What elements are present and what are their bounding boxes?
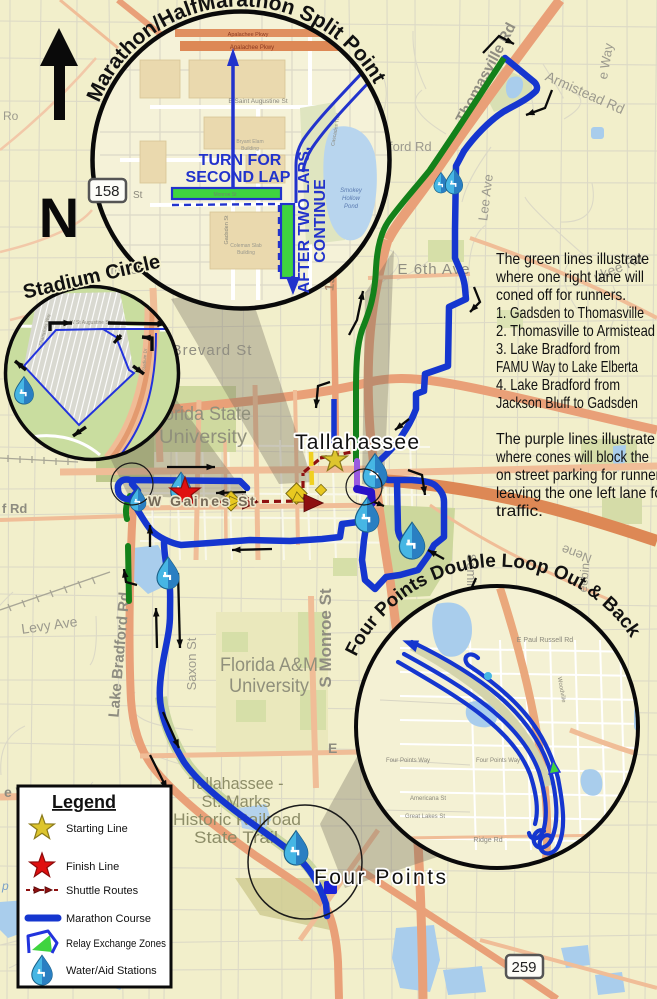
svg-text:W St Augustine St: W St Augustine St — [70, 320, 111, 326]
svg-text:ford Rd: ford Rd — [389, 139, 432, 154]
svg-text:Water/Aid Stations: Water/Aid Stations — [66, 965, 157, 977]
svg-text:Ro: Ro — [3, 109, 19, 123]
svg-text:Americana St: Americana St — [410, 796, 446, 802]
svg-text:St: St — [133, 190, 143, 201]
svg-text:E Paul Russell Rd: E Paul Russell Rd — [517, 637, 574, 644]
svg-text:Bryant Elam: Bryant Elam — [236, 139, 263, 145]
svg-text:where cones will block the: where cones will block the — [495, 449, 649, 466]
svg-text:Florida A&M: Florida A&M — [220, 655, 318, 676]
svg-text:p: p — [1, 879, 9, 893]
svg-text:Coleman Slab: Coleman Slab — [230, 243, 262, 249]
svg-text:Monroe St: Monroe St — [213, 192, 237, 198]
svg-text:The green lines illustrate: The green lines illustrate — [496, 251, 649, 268]
svg-text:B Saint Augustine St: B Saint Augustine St — [228, 98, 287, 105]
svg-text:1. Gadsden to Thomasville: 1. Gadsden to Thomasville — [496, 305, 644, 322]
svg-text:University: University — [159, 427, 248, 448]
svg-text:E: E — [328, 740, 337, 756]
svg-text:University: University — [229, 676, 309, 697]
svg-text:Four Points Way: Four Points Way — [476, 758, 520, 764]
svg-text:The purple lines illustrate: The purple lines illustrate — [496, 431, 655, 448]
svg-text:3. Lake Bradford from: 3. Lake Bradford from — [496, 341, 620, 358]
svg-text:SECOND LAP: SECOND LAP — [186, 169, 291, 186]
svg-text:traffic.: traffic. — [496, 503, 543, 520]
svg-text:259: 259 — [511, 959, 536, 976]
svg-text:leaving the one left lane for: leaving the one left lane for — [496, 485, 657, 502]
svg-text:Building: Building — [237, 250, 255, 256]
svg-text:Ridge Rd: Ridge Rd — [473, 837, 502, 844]
svg-text:Starting Line: Starting Line — [66, 823, 128, 835]
svg-text:Smokey: Smokey — [340, 188, 363, 194]
svg-text:Saxon St: Saxon St — [184, 637, 199, 690]
svg-text:Marathon Course: Marathon Course — [66, 913, 151, 925]
svg-text:Brevard St: Brevard St — [172, 342, 253, 359]
svg-text:4. Lake Bradford from: 4. Lake Bradford from — [496, 377, 620, 394]
svg-text:Four Points Way: Four Points Way — [386, 758, 430, 764]
svg-text:AFTER TWO LAPS,: AFTER TWO LAPS, — [296, 147, 313, 294]
svg-text:Pond: Pond — [344, 204, 359, 210]
svg-text:Apalachee Pkwy: Apalachee Pkwy — [230, 45, 274, 51]
svg-text:Gadsden St: Gadsden St — [224, 215, 230, 245]
svg-text:Legend: Legend — [52, 792, 116, 812]
svg-text:Jackson Bluff to Gadsden: Jackson Bluff to Gadsden — [496, 395, 638, 412]
svg-text:N: N — [39, 186, 79, 249]
svg-text:Relay Exchange Zones: Relay Exchange Zones — [66, 938, 166, 950]
svg-text:f Rd: f Rd — [2, 501, 27, 516]
svg-text:TURN FOR: TURN FOR — [199, 152, 282, 169]
svg-text:Great Lakes St: Great Lakes St — [405, 814, 445, 820]
svg-text:Shuttle Routes: Shuttle Routes — [66, 885, 139, 897]
svg-text:on street parking for runners: on street parking for runners — [496, 467, 657, 484]
svg-text:158: 158 — [94, 183, 119, 200]
svg-text:FAMU Way to Lake Elberta: FAMU Way to Lake Elberta — [496, 359, 638, 376]
svg-text:2. Thomasville to Armistead: 2. Thomasville to Armistead — [496, 323, 655, 340]
svg-text:Finish Line: Finish Line — [66, 861, 119, 873]
svg-text:where one right lane will: where one right lane will — [495, 269, 644, 286]
svg-text:coned off for runners.: coned off for runners. — [496, 287, 626, 304]
svg-text:Hollow: Hollow — [342, 196, 361, 202]
svg-text:S Monroe St: S Monroe St — [316, 588, 335, 688]
svg-text:Tallahassee: Tallahassee — [295, 431, 419, 454]
svg-text:CONTINUE: CONTINUE — [312, 179, 329, 263]
svg-text:Apalachee Pkwy: Apalachee Pkwy — [228, 32, 269, 38]
svg-text:W Gaines St: W Gaines St — [148, 493, 257, 509]
